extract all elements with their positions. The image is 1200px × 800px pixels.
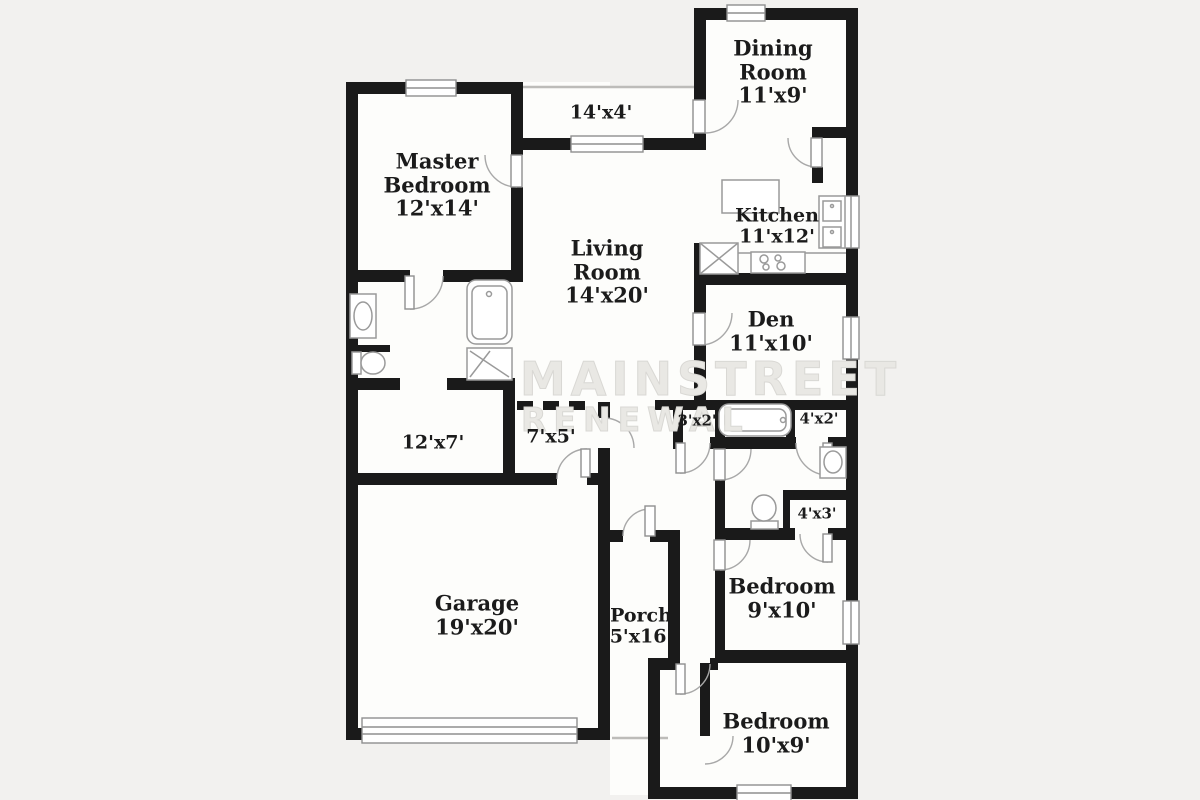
stove-icon	[751, 252, 805, 273]
room-label-bedroom2: Bedroom 9'x10'	[728, 574, 835, 621]
pantry-icon	[700, 243, 738, 274]
room-dims: 5'x16'	[610, 627, 673, 648]
shower-icon	[467, 348, 512, 380]
wall-segment	[694, 273, 846, 285]
room-dims: 7'x5'	[526, 426, 575, 447]
room-label-bedroom3: Bedroom 10'x9'	[722, 709, 829, 756]
room-dims: 14'x20'	[555, 284, 660, 308]
room-label-garage: Garage 19'x20'	[435, 591, 519, 638]
wall-segment	[715, 570, 725, 663]
wall-segment	[783, 490, 846, 500]
wall-segment	[715, 528, 795, 540]
room-name: Porch	[610, 606, 673, 627]
wall-segment	[694, 285, 706, 313]
wall-segment	[511, 150, 523, 155]
toilet-icon	[352, 352, 385, 374]
room-dims: 4'x2'	[799, 411, 838, 428]
room-dims: 12'x7'	[402, 432, 465, 453]
room-name: Kitchen	[735, 206, 819, 227]
wall-segment	[812, 167, 823, 183]
room-name: Dining Room	[717, 37, 829, 84]
window	[406, 80, 456, 96]
room-dims: 4'x3'	[797, 506, 836, 523]
wall-segment	[346, 378, 400, 390]
room-label-living-room: Living Room 14'x20'	[555, 237, 660, 308]
garage-door	[362, 718, 577, 743]
wall-segment	[648, 658, 680, 670]
wall-segment	[346, 345, 390, 352]
room-dims: 11'x10'	[729, 331, 813, 355]
room-name: Master Bedroom	[362, 150, 512, 197]
room-label-utility: 12'x7'	[402, 432, 465, 453]
sink-vanity-icon	[350, 294, 376, 338]
wall-segment	[346, 270, 410, 282]
sink-vanity2-icon	[820, 447, 846, 478]
room-dims: 11'x12'	[735, 227, 819, 248]
wall-segment	[694, 133, 706, 150]
double-sink-icon	[819, 196, 845, 248]
window	[727, 5, 765, 21]
room-label-den: Den 11'x10'	[729, 307, 813, 354]
room-label-closet-4x3: 4'x3'	[797, 506, 836, 523]
room-label-porch: Porch 5'x16'	[610, 606, 673, 649]
watermark-text-1: MAINSTREET	[520, 352, 901, 406]
room-dims: 14'x4'	[570, 102, 633, 123]
wall-segment	[715, 480, 725, 528]
floorplan-page: MAINSTREET RENEWAL	[0, 0, 1200, 800]
room-name: Bedroom	[728, 574, 835, 598]
window	[843, 601, 859, 644]
room-name: Garage	[435, 591, 519, 615]
room-dims: 10'x9'	[722, 733, 829, 757]
room-name: Den	[729, 307, 813, 331]
wall-segment	[812, 127, 846, 138]
wall-segment	[648, 658, 660, 799]
wall-segment	[503, 378, 515, 473]
wall-segment	[694, 8, 706, 100]
wall-segment	[694, 8, 858, 20]
wall-segment	[511, 187, 523, 270]
room-dims: 19'x20'	[435, 615, 519, 639]
room-dims: 12'x14'	[362, 197, 512, 221]
room-name: Bedroom	[722, 709, 829, 733]
room-label-dining-room: Dining Room 11'x9'	[717, 37, 829, 108]
room-label-closet-4x2: 4'x2'	[799, 411, 838, 428]
room-dims: 9'x10'	[728, 598, 835, 622]
bathtub-icon	[467, 280, 512, 344]
room-dims: 11'x9'	[717, 84, 829, 108]
wall-segment	[610, 530, 623, 542]
wall-segment	[598, 448, 610, 740]
wall-segment	[346, 473, 557, 485]
room-label-closet-3x2: 3'x2'	[677, 413, 716, 430]
wall-segment	[715, 650, 858, 663]
room-name: Living Room	[555, 237, 660, 284]
room-label-hall: 7'x5'	[526, 426, 575, 447]
wall-segment	[710, 658, 718, 670]
toilet2-icon	[751, 495, 778, 529]
room-label-master-bedroom: Master Bedroom 12'x14'	[362, 150, 512, 221]
room-label-entry: 14'x4'	[570, 102, 633, 123]
window	[737, 785, 791, 800]
room-dims: 3'x2'	[677, 413, 716, 430]
window	[571, 136, 643, 152]
wall-segment	[346, 82, 358, 740]
room-label-kitchen: Kitchen 11'x12'	[735, 206, 819, 249]
